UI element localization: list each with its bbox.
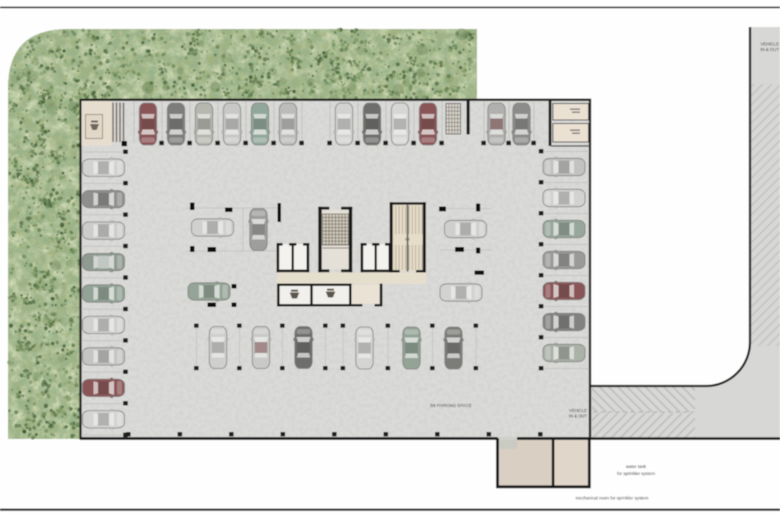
svg-text:VEHICLE: VEHICLE (569, 408, 587, 413)
svg-text:B9: B9 (405, 238, 409, 242)
svg-text:for sprinkler system: for sprinkler system (617, 471, 655, 476)
svg-text:mechanical room for sprinkler: mechanical room for sprinkler system (576, 496, 649, 501)
svg-text:VEHICLE: VEHICLE (761, 42, 780, 47)
svg-text:B9 PARKING SPACE: B9 PARKING SPACE (430, 403, 472, 408)
svg-text:IN & OUT: IN & OUT (760, 47, 779, 52)
svg-text:IN & OUT: IN & OUT (569, 414, 588, 419)
svg-text:water tank: water tank (626, 464, 647, 469)
